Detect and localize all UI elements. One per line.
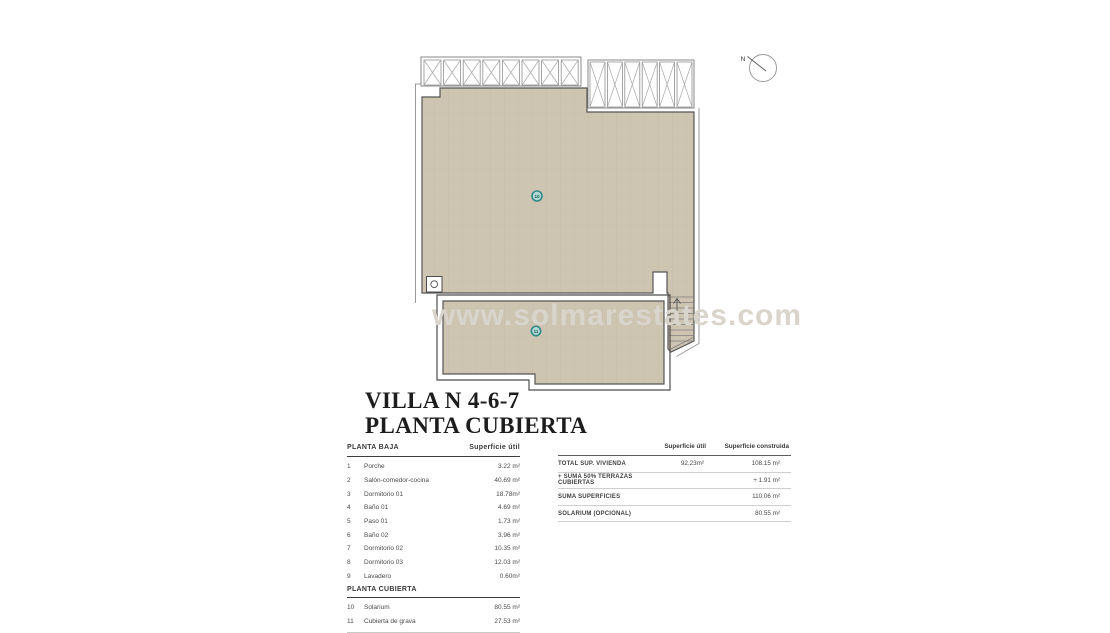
col-superficie-util: Superficie útil: [558, 443, 706, 450]
table-row: 5 Paso 01 1.73 m²: [347, 519, 520, 526]
section-planta-baja: PLANTA BAJA: [347, 444, 399, 451]
table-row: 8 Dormitorio 03 12.03 m²: [347, 560, 520, 567]
table-row: SUMA SUPERFICIES 110.06 m²: [558, 489, 791, 506]
table-row: 7 Dormitorio 02 10.35 m²: [347, 546, 520, 553]
surface-table-right: Superficie útil Superficie construida TO…: [558, 443, 791, 522]
svg-text:11: 11: [534, 329, 539, 334]
table-row: 4 Baño 01 4.69 m²: [347, 505, 520, 512]
pergola-left: [421, 57, 581, 86]
page-title: VILLA N 4-6-7 PLANTA CUBIERTA: [365, 388, 587, 438]
table-row: + SUMA 50% TERRAZAS CUBIERTAS + 1.91 m²: [558, 473, 791, 490]
table-row: 2 Salón-comedor-cocina 40.69 m²: [347, 478, 520, 485]
table-row: 11 Cubierta de grava 27.53 m²: [347, 619, 520, 626]
table-row: TOTAL SUP. VIVIENDA 92.23m² 108.15 m²: [558, 456, 791, 473]
col-superficie-util: Superficie útil: [469, 444, 520, 451]
marker-10: 10: [532, 191, 542, 201]
title-line-2: PLANTA CUBIERTA: [365, 413, 587, 438]
svg-text:N: N: [741, 56, 746, 63]
title-line-1: VILLA N 4-6-7: [365, 388, 587, 413]
col-superficie-construida: Superficie construida: [706, 443, 791, 450]
table-row: 1 Porche 3.22 m²: [347, 464, 520, 471]
watermark-text: www.solmarestates.com: [431, 299, 802, 332]
marker-11: 11: [531, 326, 540, 335]
table-row: 10 Solarium 80.55 m²: [347, 605, 520, 612]
pergola-right: [588, 60, 694, 108]
surface-table-left: PLANTA BAJA Superficie útil 1 Porche 3.2…: [347, 444, 520, 633]
left-table-bottom-rule: [347, 626, 520, 633]
section-planta-cubierta: PLANTA CUBIERTA: [347, 586, 520, 598]
right-table-header: Superficie útil Superficie construida: [558, 443, 791, 456]
floor-plan-drawing: www.solmarestates.com 10 11 N: [0, 0, 1110, 626]
svg-text:10: 10: [534, 194, 540, 199]
compass-icon: N: [741, 55, 777, 82]
table-row: 3 Dormitorio 01 18.78m²: [347, 492, 520, 499]
left-table-header: PLANTA BAJA Superficie útil: [347, 444, 520, 457]
table-row: 9 Lavadero 0.60m²: [347, 574, 520, 581]
table-row: SOLARIUM (OPCIONAL) 80.55 m²: [558, 506, 791, 523]
drain-symbol: [427, 277, 443, 293]
table-row: 6 Baño 02 3.96 m²: [347, 533, 520, 540]
